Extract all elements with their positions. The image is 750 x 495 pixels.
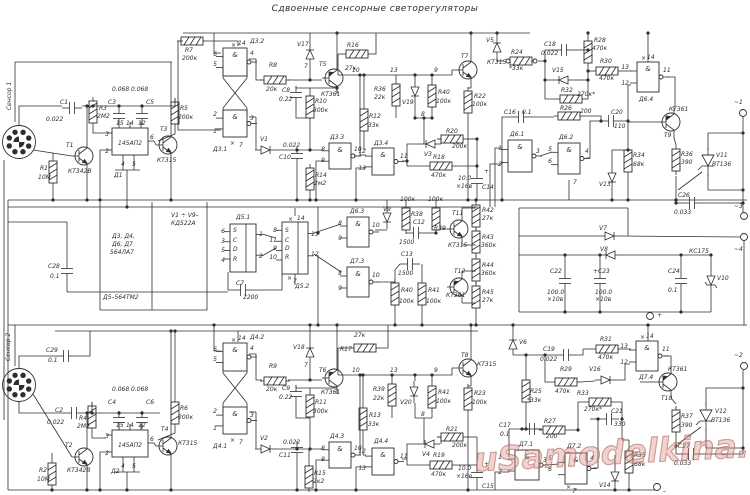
touch-sensor-pad (3, 369, 36, 402)
component-label: T9 (664, 132, 672, 139)
component-label: 13 (390, 367, 398, 374)
diode-symbol (509, 333, 517, 355)
svg-text:&: & (380, 451, 386, 459)
nand-gate-symbol: & (501, 140, 542, 172)
junction-dot (295, 488, 298, 491)
capacitor-symbol (61, 262, 73, 280)
component-label: R28 (594, 37, 606, 44)
diode-symbol (419, 140, 441, 148)
component-label: R44 (482, 262, 494, 269)
component-label: V5 (486, 37, 494, 44)
component-label: 1 (213, 425, 217, 432)
component-label: C19 (543, 346, 555, 353)
junction-dot (413, 373, 416, 376)
component-label: T4 (161, 426, 169, 433)
junction-dot (469, 31, 472, 34)
junction-dot (543, 78, 546, 81)
component-label: 9 (338, 235, 342, 242)
component-label: Д5.1 (235, 214, 250, 221)
component-label: 7 (293, 278, 297, 285)
junction-dot (335, 31, 338, 34)
component-label: C1 (60, 99, 68, 106)
resistor-symbol (402, 204, 410, 234)
junction-dot (646, 31, 649, 34)
component-label: R10 (315, 98, 327, 105)
terminal-circle (647, 313, 654, 320)
component-label: V1 ÷ V9– (171, 212, 199, 219)
flipflop-symbol (224, 224, 262, 272)
component-label: R13 (369, 412, 381, 419)
junction-dot (308, 447, 311, 450)
component-label: Д6.3 (349, 208, 364, 215)
resistor-symbol (585, 398, 615, 406)
junction-dot (626, 198, 629, 201)
capacitor-symbol (556, 349, 576, 361)
resistor-symbol (592, 345, 622, 353)
component-label: V17 (297, 41, 309, 48)
diode-symbol (255, 445, 277, 453)
component-label: 11 (400, 453, 408, 460)
junction-dot (741, 188, 744, 191)
component-label: C29 (46, 347, 58, 354)
component-label: R2 (39, 467, 47, 474)
resistor-symbol (472, 282, 480, 312)
component-label: R30 (600, 58, 612, 65)
wire (92, 432, 106, 438)
nand-gate-symbol: & (365, 448, 404, 475)
junction-dot (709, 253, 712, 256)
resistor-symbol (464, 384, 472, 414)
wire (545, 61, 552, 80)
component-label: Д3.3 (329, 134, 344, 141)
component-label: 9 (321, 157, 325, 164)
component-label: 8 (273, 227, 277, 234)
component-label: 0.022 (47, 419, 64, 426)
component-label: 0.1 (668, 287, 678, 294)
component-label: C22 (550, 268, 562, 275)
component-label: R27 (544, 418, 556, 425)
component-label: 100к (436, 98, 451, 105)
component-label: C7 (236, 280, 244, 287)
component-label: 200к (182, 55, 197, 62)
component-label: 0.22 (279, 394, 293, 401)
component-label: КТ361 (446, 292, 465, 299)
junction-dot (598, 310, 601, 313)
component-label: 0.022 (283, 142, 300, 149)
component-label: R9 (269, 363, 277, 370)
component-label: 1 (498, 145, 502, 152)
wire (356, 168, 366, 200)
component-label: ~3 (734, 203, 743, 210)
touch-sensor-pad (3, 126, 36, 159)
resistor-symbol (306, 391, 314, 421)
component-label: 0.068 (112, 386, 129, 393)
component-label: × (230, 140, 235, 147)
resistor-symbol (388, 380, 396, 410)
component-label: C8 (282, 87, 290, 94)
component-label: 14 (647, 54, 655, 61)
component-label: 27к (482, 297, 494, 304)
junction-dot (563, 253, 566, 256)
component-label: 470к (431, 471, 446, 478)
component-label: Д4.4 (373, 438, 388, 445)
terminal-circle (533, 59, 537, 63)
component-label: R33 (577, 390, 589, 397)
component-label: Сенсор 1 (6, 82, 13, 110)
junction-dot (212, 323, 215, 326)
component-label: 145АП2 (118, 140, 142, 147)
resistor-symbol (464, 87, 472, 117)
junction-dot (90, 411, 93, 414)
component-label: C10 (279, 154, 291, 161)
component-label: 470к (555, 388, 570, 395)
component-label: R20 (446, 128, 458, 135)
component-label: КД522А (171, 220, 196, 227)
zener-symbol (705, 270, 717, 292)
diode-symbol (599, 232, 621, 240)
component-label: КТ361 (669, 106, 688, 113)
junction-dot (295, 198, 298, 201)
component-label: T12 (454, 268, 465, 275)
component-label: R40 (438, 89, 450, 96)
wire (667, 77, 675, 106)
component-label: V16 (589, 366, 601, 373)
component-label: R38 (411, 211, 423, 218)
component-label: C16 (504, 109, 516, 116)
component-label: R32 (561, 87, 573, 94)
component-label: C2 (55, 407, 63, 414)
junction-dot (169, 329, 172, 332)
component-label: × (640, 334, 645, 341)
wire (440, 70, 456, 75)
wire (407, 144, 419, 161)
component-label: V13 (599, 181, 611, 188)
component-label: 100к (400, 196, 415, 203)
component-label: R43 (482, 234, 494, 241)
component-label: 6 (548, 158, 552, 165)
component-label: 0.1 (50, 273, 60, 280)
junction-dot (646, 323, 649, 326)
component-label: 13 (358, 165, 366, 172)
wire (440, 368, 456, 375)
junction-dot (354, 198, 357, 201)
component-label: R24 (511, 49, 523, 56)
junction-dot (362, 73, 365, 76)
component-label: 0.1 (522, 109, 532, 116)
component-label: 4 (250, 50, 254, 57)
wire (581, 381, 595, 382)
component-label: 7 (239, 142, 243, 149)
component-label: 11 (663, 67, 671, 74)
resistor-symbol (428, 81, 436, 111)
component-label: 2М2 (97, 113, 110, 120)
component-label: 200к (452, 143, 467, 150)
component-label: + (657, 312, 662, 319)
component-label: 3 (250, 115, 254, 122)
junction-dot (308, 148, 311, 151)
component-label: 9 (338, 285, 342, 292)
resistor-symbol (592, 67, 622, 75)
junction-dot (466, 198, 469, 201)
component-label: 3 (105, 433, 109, 440)
component-label: 2к2 (313, 478, 324, 485)
component-label: R22 (474, 93, 486, 100)
component-label: 9 (434, 67, 438, 74)
wire (468, 86, 471, 88)
component-label: 100к (428, 196, 443, 203)
component-label: R (233, 256, 237, 263)
component-label: 0.22 (279, 96, 293, 103)
component-label: R37 (681, 413, 693, 420)
component-label: V2 (260, 435, 268, 442)
svg-text:&: & (232, 410, 238, 418)
terminal-circle (740, 110, 747, 117)
junction-dot (741, 386, 744, 389)
junction-dot (335, 323, 338, 326)
component-label: 9 (321, 456, 325, 463)
component-label: 10.0 (458, 465, 472, 472)
component-label: Д4.3 (329, 433, 344, 440)
component-label: 13 (358, 465, 366, 472)
component-label: 3 (536, 148, 540, 155)
component-label: 9 (434, 367, 438, 374)
wire (495, 148, 502, 207)
junction-dot (308, 378, 311, 381)
component-label: C26 (678, 192, 690, 199)
resistor-symbol (472, 255, 480, 285)
component-label: КТ315 (178, 440, 198, 447)
component-label: 0.033 (674, 209, 691, 216)
component-label: R21 (446, 426, 458, 433)
component-label: 15 (116, 422, 124, 429)
component-label: 0.022 (283, 439, 300, 446)
component-label: 8 (421, 111, 425, 118)
terminal-circle (654, 484, 661, 491)
junction-dot (475, 164, 478, 167)
component-label: 12 (620, 359, 628, 366)
component-label: 7 (304, 63, 308, 70)
labels: Сенсор 1Сенсор 2C10.022R32М20.0680.068C3… (5, 37, 743, 495)
component-label: 13 (390, 67, 398, 74)
component-label: D (233, 246, 238, 253)
diode-symbol (493, 36, 501, 58)
component-label: 200к (178, 114, 193, 121)
component-label: *33к (527, 397, 542, 404)
component-label: Д3.1 (212, 146, 227, 153)
component-label: 4 (585, 148, 589, 155)
component-label: 8 (421, 411, 425, 418)
component-label: 2 (213, 408, 217, 415)
component-label: ~1 (734, 99, 743, 106)
component-label: V4 (422, 451, 430, 458)
component-label: Д6, Д7 (111, 241, 133, 248)
component-label: × (230, 437, 235, 444)
component-label: 5 (548, 146, 552, 153)
component-label: T6 (319, 367, 327, 374)
wire (576, 349, 583, 355)
component-label: ×16в (456, 473, 473, 480)
component-label: V10 (717, 275, 729, 282)
component-label: R17 (340, 346, 352, 353)
junction-dot (466, 488, 469, 491)
resistor-symbol (506, 57, 536, 65)
junction-dot (125, 205, 128, 208)
svg-text:&: & (644, 344, 650, 352)
wire (621, 236, 740, 237)
component-label: 14 (297, 215, 305, 222)
resistor-symbol (472, 201, 480, 231)
component-label: 200 (580, 108, 592, 115)
junction-dot (308, 198, 311, 201)
component-label: КТ315 (477, 361, 497, 368)
component-label: 13 (621, 64, 629, 71)
component-label: 8 (338, 220, 342, 227)
component-label: 33к (368, 421, 380, 428)
component-label: V15 (552, 67, 564, 74)
component-label: R31 (600, 336, 612, 343)
junction-dot (511, 323, 514, 326)
component-label: КТ315 (157, 157, 177, 164)
junction-dot (679, 310, 682, 313)
resistor-symbol (49, 157, 57, 187)
component-label: T7 (461, 53, 469, 60)
component-label: 15 (116, 120, 124, 127)
nand-gate-symbol: & (365, 148, 404, 175)
component-label: 68к (633, 161, 645, 168)
component-label: R12 (369, 113, 381, 120)
junction-dot (586, 31, 589, 34)
component-label: 6 (213, 346, 217, 353)
svg-text:&: & (380, 151, 386, 159)
component-label: R29 (560, 366, 572, 373)
component-label: 270к* (584, 406, 602, 413)
component-label: 2М2 (77, 423, 90, 430)
component-label: C12 (413, 219, 425, 226)
component-label: C6 (146, 399, 154, 406)
junction-dot (308, 323, 311, 326)
wire (545, 80, 556, 99)
component-label: × (231, 337, 236, 344)
junction-dot (586, 69, 589, 72)
component-label: R (285, 254, 289, 261)
component-label: T8 (461, 352, 469, 359)
component-label: ~2 (734, 352, 743, 359)
component-label: 7 (239, 439, 243, 446)
component-label: R45 (482, 289, 494, 296)
component-label: 5 (132, 161, 136, 168)
component-label: 12 (358, 148, 366, 155)
junction-dot (586, 78, 589, 81)
resistor-symbol (418, 279, 426, 309)
junction-dot (610, 198, 613, 201)
component-label: 1500 (399, 239, 414, 246)
resistor-symbol (672, 145, 680, 175)
component-label: × (288, 216, 293, 223)
component-label: +C23 (593, 268, 610, 275)
component-label: V3 (424, 151, 432, 158)
component-label: C9 (282, 385, 290, 392)
component-label: R19 (433, 452, 445, 459)
component-label: 10.0 (458, 175, 472, 182)
component-label: 8 (321, 445, 325, 452)
component-label: V14 (599, 482, 611, 489)
component-label: 6 (213, 51, 217, 58)
component-label: 2м2 (314, 180, 326, 187)
component-label: V8 (600, 246, 608, 253)
junction-dot (524, 353, 527, 356)
component-label: R1 (40, 165, 48, 172)
junction-dot (626, 119, 629, 122)
wire (377, 279, 395, 282)
svg-text:&: & (355, 270, 361, 278)
component-label: 20к (266, 86, 278, 93)
component-label: R40 (401, 287, 413, 294)
component-label: C (233, 237, 238, 244)
junction-dot (430, 116, 433, 119)
wire (437, 139, 441, 144)
component-label: 1 (259, 231, 263, 238)
component-label: 20к (266, 386, 278, 393)
resistor-symbol (426, 461, 456, 469)
component-label: 100к (472, 399, 487, 406)
component-label: 33к (368, 122, 380, 129)
component-label: R23 (474, 390, 486, 397)
wire (502, 117, 511, 200)
component-label: 10М (37, 476, 51, 483)
component-label: 0.022 (540, 356, 557, 363)
component-label: V20 (400, 399, 412, 406)
component-label: S (233, 227, 237, 234)
component-label: R15 (314, 470, 326, 477)
component-label: ~4 (734, 246, 743, 253)
component-label: 7 (304, 362, 308, 369)
component-label: Д4.2 (249, 334, 264, 341)
svg-text:&: & (232, 51, 238, 59)
component-label: V19 (402, 99, 414, 106)
junction-dot (741, 131, 744, 134)
transistor-symbol (156, 430, 177, 462)
component-label: КТ315 (487, 59, 507, 66)
component-label: V11 (716, 152, 728, 159)
junction-dot (354, 488, 357, 491)
terminal-circle (741, 234, 748, 241)
component-label: 4 (221, 257, 225, 264)
wire (690, 255, 711, 270)
junction-dot (469, 323, 472, 326)
component-label: R5 (180, 105, 188, 112)
schematic-canvas: &&&&&&&&&&&&&&&&Сенсор 1Сенсор 2C10.022R… (0, 0, 750, 495)
component-label: 1500 (398, 270, 413, 277)
component-label: 100к (436, 398, 451, 405)
junction-dot (314, 488, 317, 491)
component-label: R39 (434, 225, 446, 232)
component-label: 330 (614, 421, 626, 428)
component-label: V12 (715, 408, 727, 415)
wire (380, 325, 388, 348)
component-label: 100.0 (547, 289, 564, 296)
component-label: 5 (213, 356, 217, 363)
diode-symbol (595, 376, 617, 384)
component-label: 10 (352, 367, 360, 374)
component-label: – (663, 488, 666, 495)
component-label: 0.022 (541, 50, 558, 57)
component-label: V7 (599, 225, 607, 232)
diode-symbol (255, 146, 277, 154)
component-label: ×10в (547, 296, 564, 303)
component-label: 4 (121, 161, 125, 168)
junction-dot (308, 78, 311, 81)
component-label: T10 (661, 395, 672, 402)
